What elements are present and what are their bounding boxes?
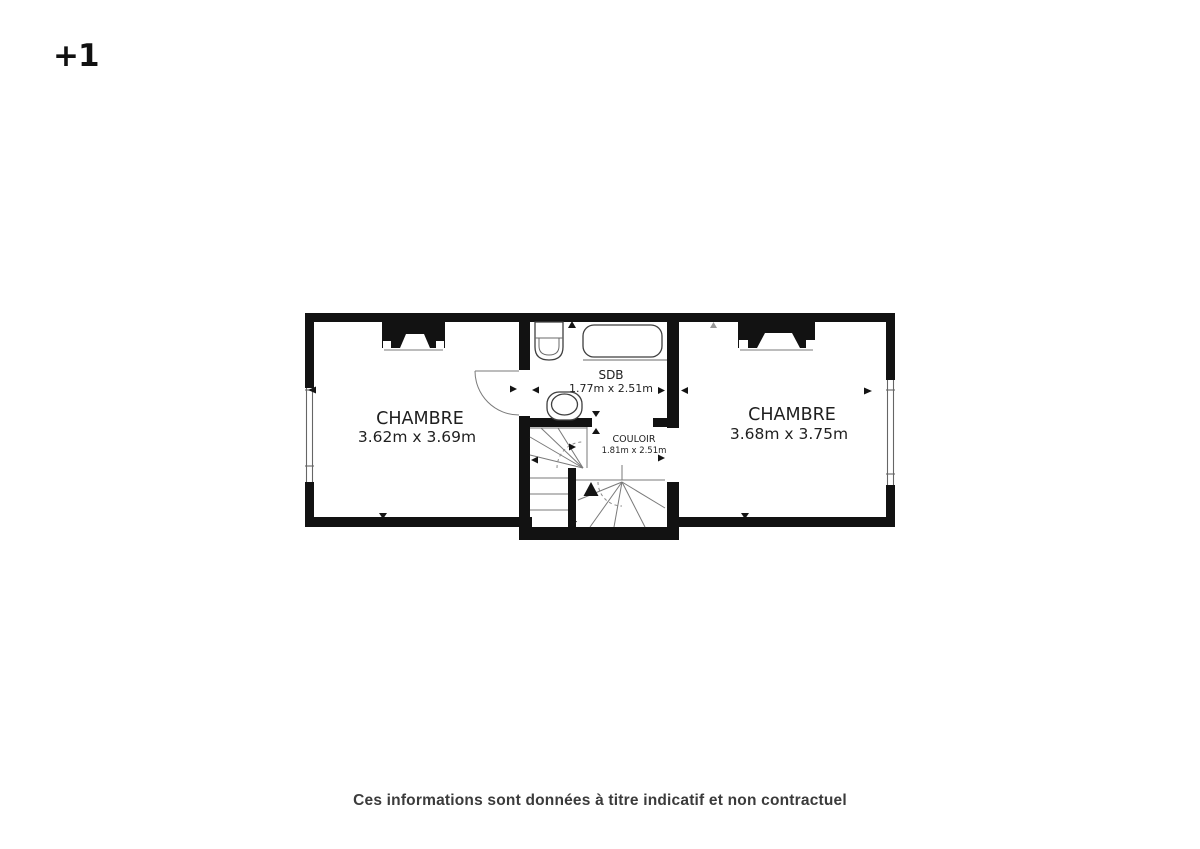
stairs-direction-arrow: [584, 482, 599, 496]
wall-mid-right-lower: [667, 482, 679, 540]
wall-mid-left-lower: [519, 416, 530, 540]
floor-plan: CHAMBRE 3.62m x 3.69m SDB 1.77m x 2.51m …: [0, 0, 1200, 849]
room-labels: CHAMBRE 3.62m x 3.69m SDB 1.77m x 2.51m …: [358, 368, 848, 456]
wall-mid-left-upper: [519, 313, 530, 370]
marker-stairs-upper: [569, 444, 576, 451]
wall-sdb-bottom-right: [653, 418, 667, 427]
chimney-left: [382, 313, 445, 350]
wall-mid-right-upper: [667, 313, 679, 428]
room-dims-sdb: 1.77m x 2.51m: [569, 382, 653, 395]
marker-sdb-door-b: [592, 428, 600, 434]
door-left-bedroom: [475, 371, 519, 415]
wall-left-upper: [305, 313, 314, 388]
wall-bottom-left: [305, 517, 532, 527]
wall-right-upper: [886, 313, 895, 380]
sink: [535, 322, 563, 360]
marker-sdb-right-b: [681, 387, 688, 394]
floorplan-page: +1: [0, 0, 1200, 849]
window-right: [886, 380, 895, 485]
marker-sdb-door-a: [592, 411, 600, 417]
toilet: [547, 392, 582, 420]
marker-sdb-right-a: [658, 387, 665, 394]
room-dims-chambre-left: 3.62m x 3.69m: [358, 428, 476, 446]
wall-stair-newel: [568, 468, 576, 528]
marker-top-right: [710, 322, 717, 328]
wall-bottom-middle: [519, 527, 679, 540]
marker-window-right: [864, 388, 872, 395]
room-name-chambre-right: CHAMBRE: [748, 405, 836, 425]
disclaimer-text: Ces informations sont données à titre in…: [0, 792, 1200, 810]
door-swing-arc: [475, 371, 519, 415]
marker-top-sdb: [568, 321, 576, 328]
marker-door-right: [532, 387, 539, 394]
window-left: [305, 388, 314, 482]
room-dims-chambre-right: 3.68m x 3.75m: [730, 425, 848, 443]
room-name-couloir: COULOIR: [613, 434, 656, 445]
marker-door-left: [510, 386, 517, 393]
chimney-right: [738, 313, 815, 350]
room-dims-couloir: 1.81m x 2.51m: [602, 446, 667, 456]
room-name-sdb: SDB: [598, 368, 623, 382]
wall-bottom-right: [667, 517, 895, 527]
room-name-chambre-left: CHAMBRE: [376, 409, 464, 429]
bathtub: [583, 325, 667, 360]
marker-stairs-left: [531, 457, 538, 464]
